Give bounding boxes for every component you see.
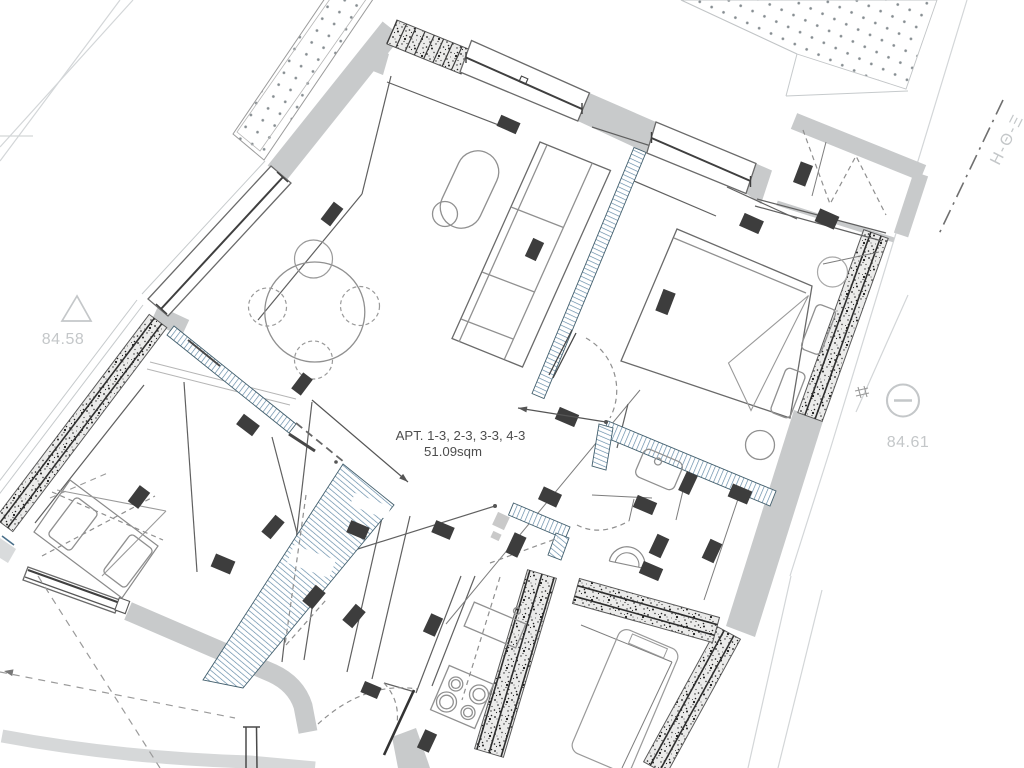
svg-text:51.09sqm: 51.09sqm [424,444,482,459]
svg-text:APT. 1-3, 2-3, 3-3, 4-3: APT. 1-3, 2-3, 3-3, 4-3 [396,428,526,443]
svg-text:84.61: 84.61 [887,434,930,451]
svg-text:84.58: 84.58 [42,331,85,348]
